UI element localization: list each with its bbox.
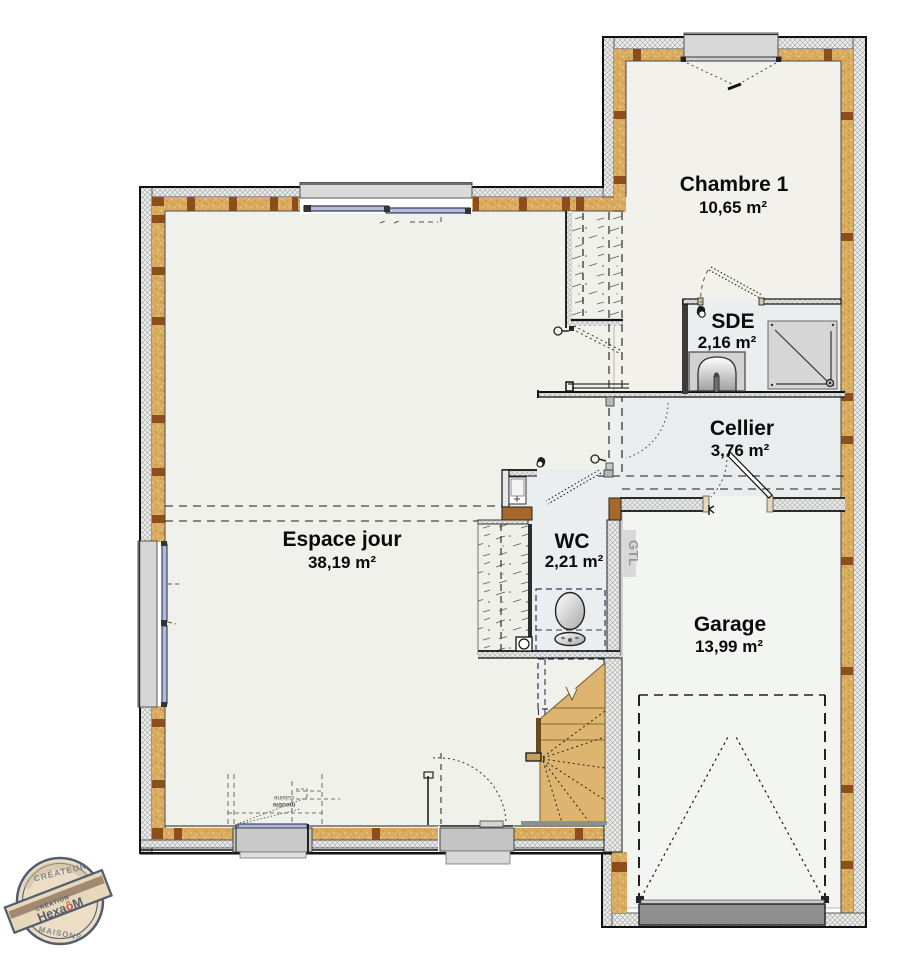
svg-text:10,65 m²: 10,65 m² — [699, 198, 767, 217]
svg-text:Cellier: Cellier — [710, 417, 774, 440]
svg-text:2,16 m²: 2,16 m² — [698, 333, 757, 352]
svg-text:meuble: meuble — [272, 801, 295, 808]
svg-text:Garage: Garage — [694, 613, 766, 636]
svg-text:cuisine: cuisine — [273, 794, 294, 801]
svg-text:Chambre 1: Chambre 1 — [680, 173, 789, 196]
svg-text:SDE: SDE — [711, 310, 754, 333]
svg-text:WC: WC — [555, 530, 590, 553]
svg-text:38,19 m²: 38,19 m² — [308, 553, 376, 572]
svg-text:3,76 m²: 3,76 m² — [711, 441, 770, 460]
svg-text:2,21 m²: 2,21 m² — [545, 552, 604, 571]
svg-text:13,99 m²: 13,99 m² — [695, 637, 763, 656]
svg-text:GTL: GTL — [626, 540, 641, 566]
svg-text:Espace jour: Espace jour — [282, 528, 401, 551]
